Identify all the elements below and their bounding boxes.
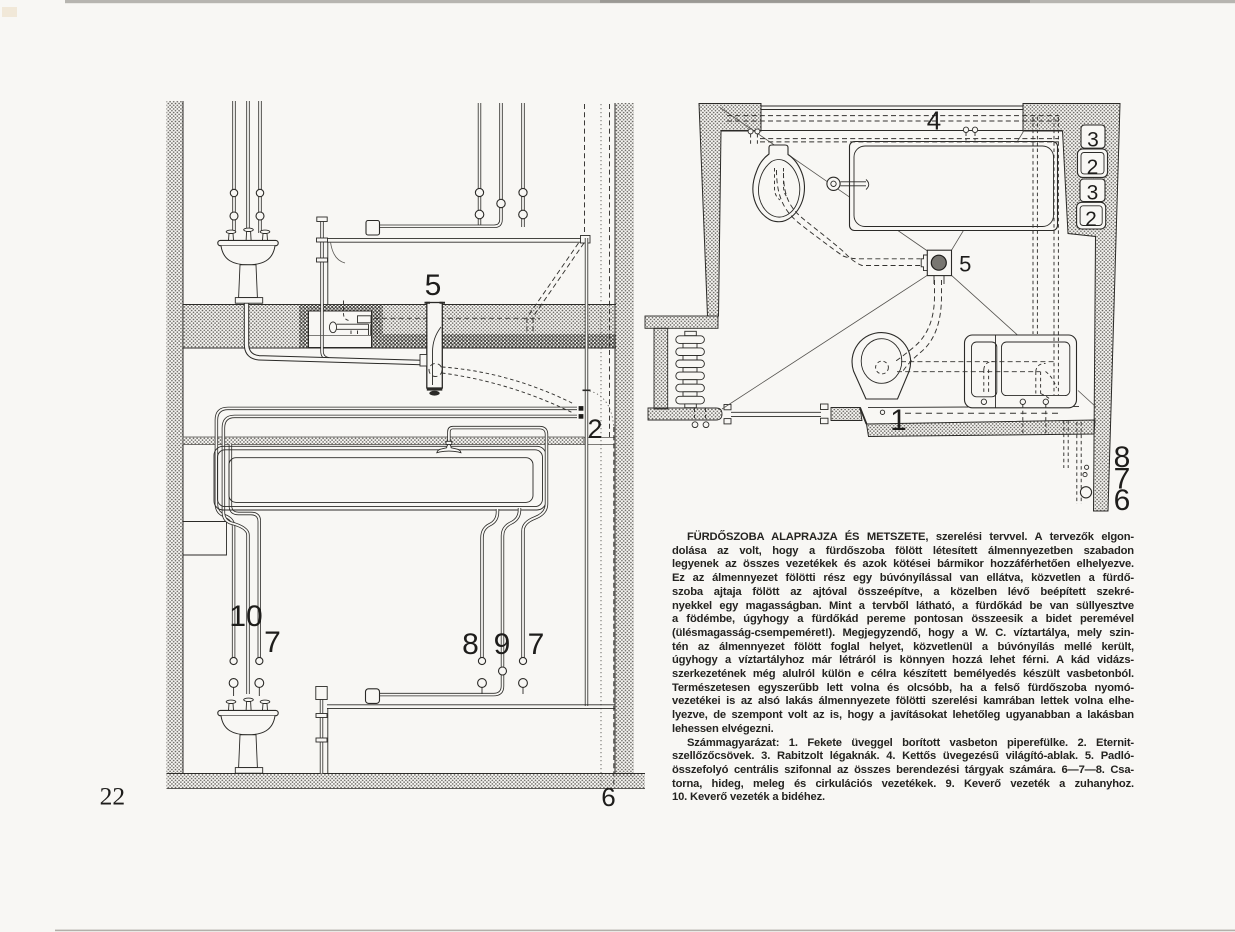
svg-text:10: 10 bbox=[229, 600, 262, 633]
svg-text:6: 6 bbox=[1114, 484, 1131, 517]
svg-text:4: 4 bbox=[927, 106, 941, 136]
svg-text:6: 6 bbox=[601, 782, 615, 812]
svg-text:2: 2 bbox=[1087, 156, 1099, 179]
svg-text:2: 2 bbox=[587, 414, 602, 444]
svg-text:3: 3 bbox=[1087, 128, 1099, 151]
svg-text:9: 9 bbox=[494, 628, 511, 661]
svg-text:22: 22 bbox=[100, 782, 126, 811]
svg-text:5: 5 bbox=[959, 252, 971, 277]
svg-text:7: 7 bbox=[528, 628, 545, 661]
svg-text:1: 1 bbox=[890, 404, 907, 437]
svg-text:2: 2 bbox=[1085, 208, 1097, 231]
svg-text:3: 3 bbox=[1087, 182, 1099, 205]
svg-text:5: 5 bbox=[425, 269, 442, 302]
svg-text:8: 8 bbox=[462, 628, 479, 661]
svg-text:7: 7 bbox=[264, 626, 281, 659]
